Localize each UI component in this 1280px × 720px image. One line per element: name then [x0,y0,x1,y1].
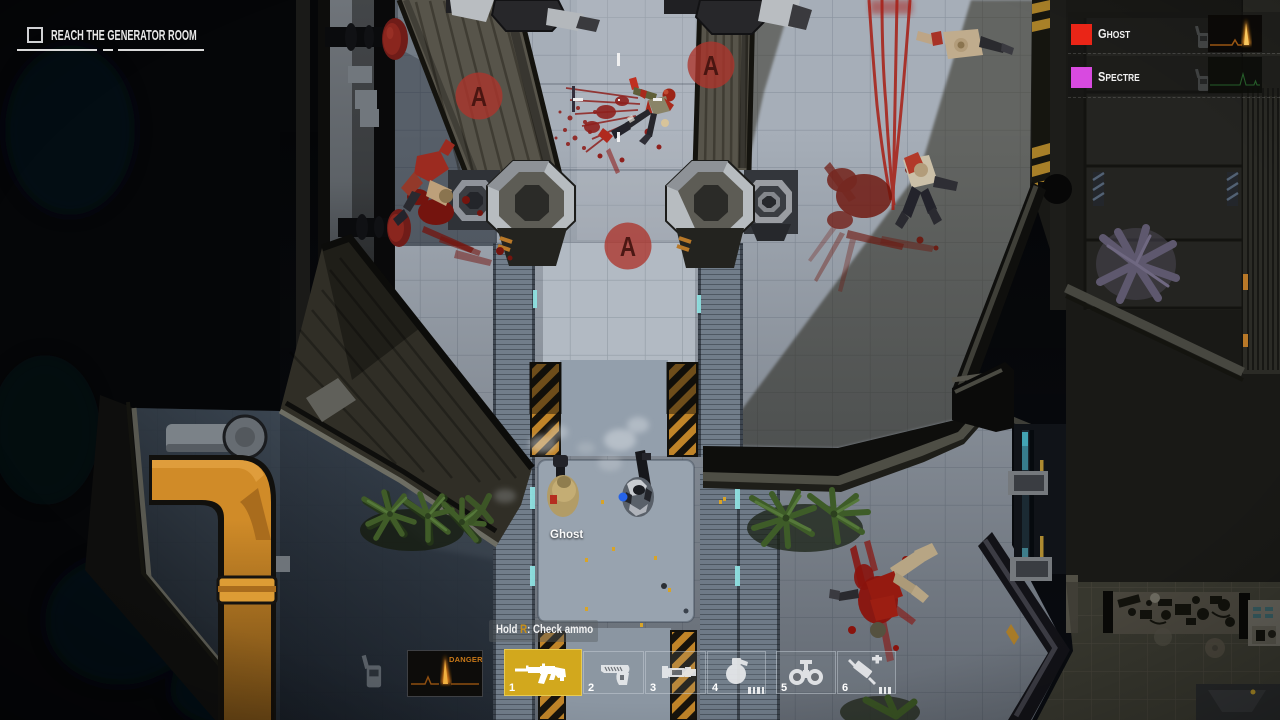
svg-text:DANGER: DANGER [449,655,483,664]
